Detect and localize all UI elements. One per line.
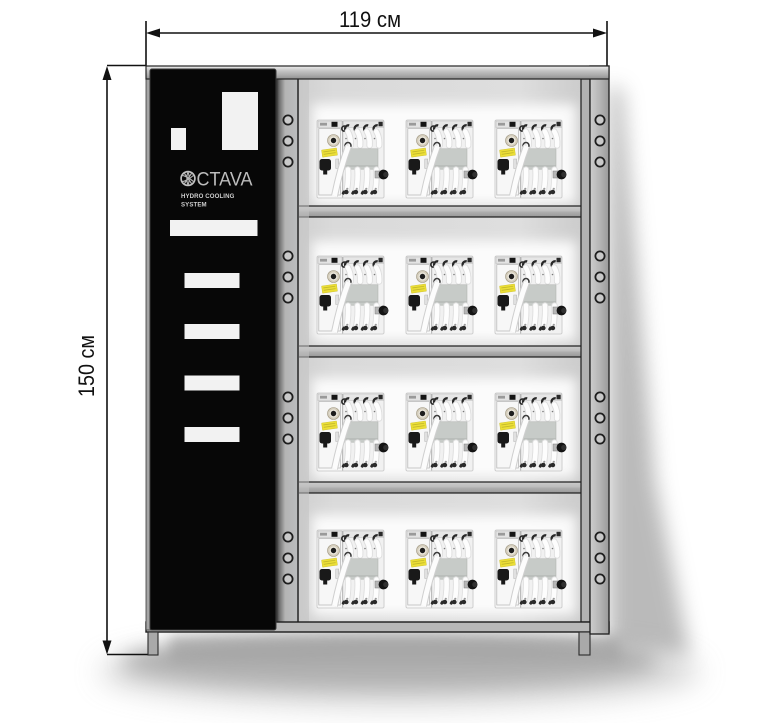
- svg-text:119 см: 119 см: [339, 7, 401, 32]
- svg-text:150 см: 150 см: [74, 335, 99, 397]
- svg-text:HYDRO COOLING: HYDRO COOLING: [181, 193, 235, 200]
- svg-text:SYSTEM: SYSTEM: [181, 202, 207, 209]
- svg-text:CTAVA: CTAVA: [197, 169, 253, 191]
